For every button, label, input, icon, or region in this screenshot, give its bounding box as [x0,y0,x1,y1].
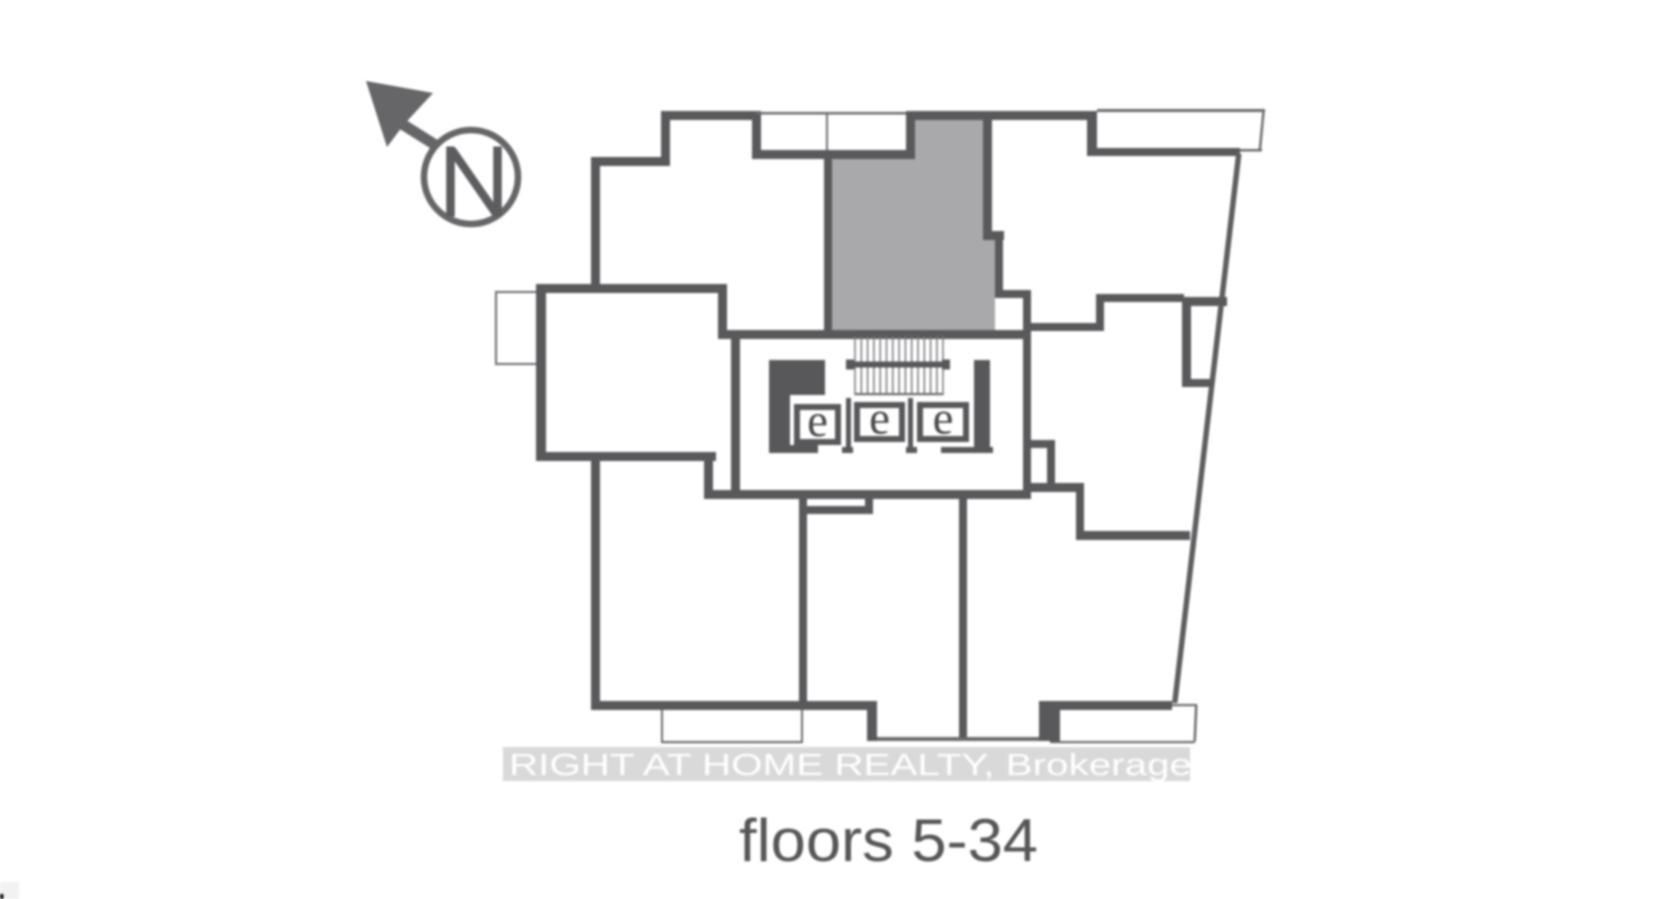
svg-text:floors 5-34: floors 5-34 [739,807,1038,874]
svg-text:e: e [869,393,890,445]
svg-text:RIGHT AT HOME REALTY, Brokerag: RIGHT AT HOME REALTY, Brokerage [509,748,1192,782]
svg-text:e: e [933,393,954,445]
svg-text:e: e [807,395,828,447]
